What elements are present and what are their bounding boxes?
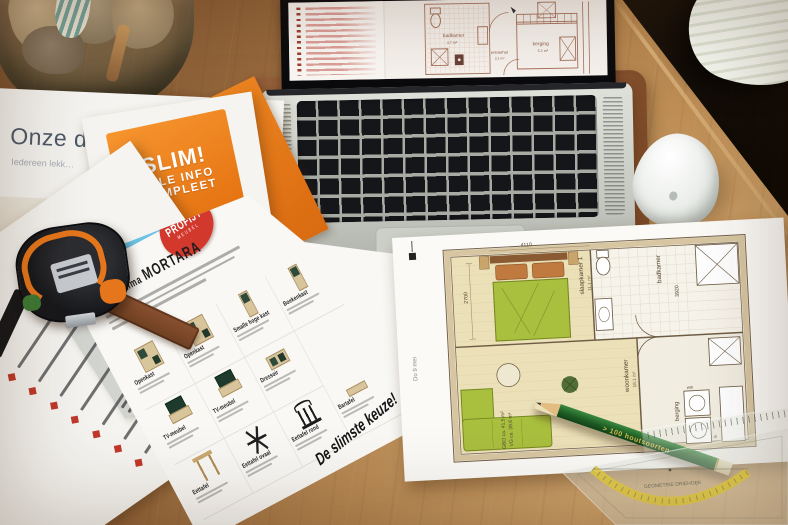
dim-bathroom: 3920 xyxy=(674,285,681,297)
tape-measure-clip xyxy=(65,312,96,328)
cad-room-hall: entreehal xyxy=(491,50,508,55)
tape-measure-bumper xyxy=(98,278,127,305)
diamond-bullet-icon xyxy=(50,401,58,409)
diamond-bullet-icon xyxy=(92,430,100,438)
dim-top: 4110 xyxy=(520,242,532,249)
cad-room-bathroom: badkamer xyxy=(443,33,465,39)
desk-photo-scene: badkamer 4.7 m² entreehal 3.1 m² berging… xyxy=(0,0,788,525)
diamond-bullet-icon xyxy=(29,387,37,395)
cursor-icon xyxy=(510,7,515,14)
smalle-kast-image xyxy=(238,290,259,318)
room-living-area: 18,1 m² xyxy=(631,371,638,388)
cad-room-bathroom-area: 4.7 m² xyxy=(447,41,458,45)
cad-room-storage-area: 5.2 m² xyxy=(538,49,549,53)
print-footer-date: Do 9 mei xyxy=(412,357,419,381)
room-bathroom-label: badkamer xyxy=(655,255,663,283)
boekenkast-image xyxy=(287,264,308,292)
dim-left: 2700 xyxy=(463,292,470,304)
droom-subtitle: Iedereen lekk… xyxy=(11,157,74,170)
panel-fade xyxy=(288,1,384,81)
diamond-bullet-icon xyxy=(7,373,15,381)
north-marker-icon xyxy=(409,253,416,260)
room-bedroom-area: 11,1 m² xyxy=(586,275,593,291)
speaker-grille-right xyxy=(603,96,625,214)
apple-logo-icon xyxy=(668,191,678,202)
cad-room-storage: berging xyxy=(533,41,550,47)
diamond-bullet-icon xyxy=(135,459,143,467)
diamond-bullet-icon xyxy=(71,416,79,424)
tape-measure xyxy=(7,214,152,346)
cad-layers-panel xyxy=(288,1,385,81)
diamond-bullet-icon xyxy=(114,445,122,453)
screen-display: badkamer 4.7 m² entreehal 3.1 m² berging… xyxy=(288,0,607,81)
keyboard xyxy=(297,95,599,223)
protractor-triangle: GEOMETRIE DRIEHOEK xyxy=(556,414,788,525)
cad-room-hall-area: 3.1 m² xyxy=(495,56,506,60)
washer-label: wm xyxy=(687,385,694,390)
cad-floorplan-drawing: badkamer 4.7 m² entreehal 3.1 m² berging… xyxy=(384,0,607,79)
